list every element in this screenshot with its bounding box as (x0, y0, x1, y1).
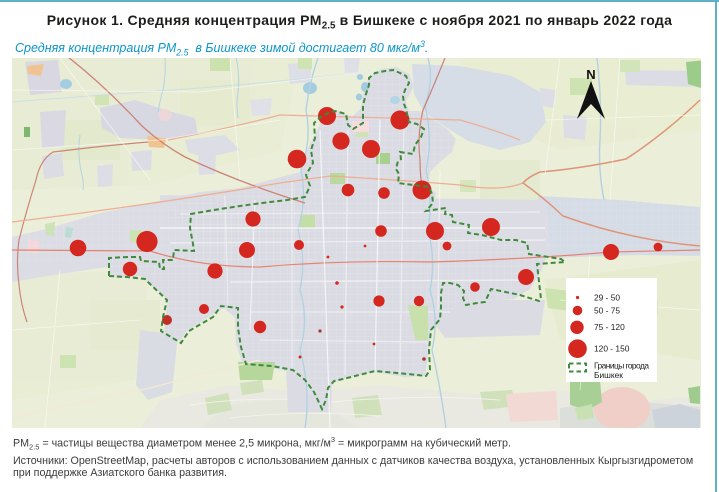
svg-text:29 - 50: 29 - 50 (594, 292, 620, 302)
svg-text:50 - 75: 50 - 75 (594, 305, 620, 315)
svg-text:75 - 120: 75 - 120 (594, 322, 625, 332)
svg-text:N: N (586, 67, 595, 82)
svg-text:Бишкек: Бишкек (594, 370, 623, 380)
svg-text:120 - 150: 120 - 150 (594, 343, 630, 353)
